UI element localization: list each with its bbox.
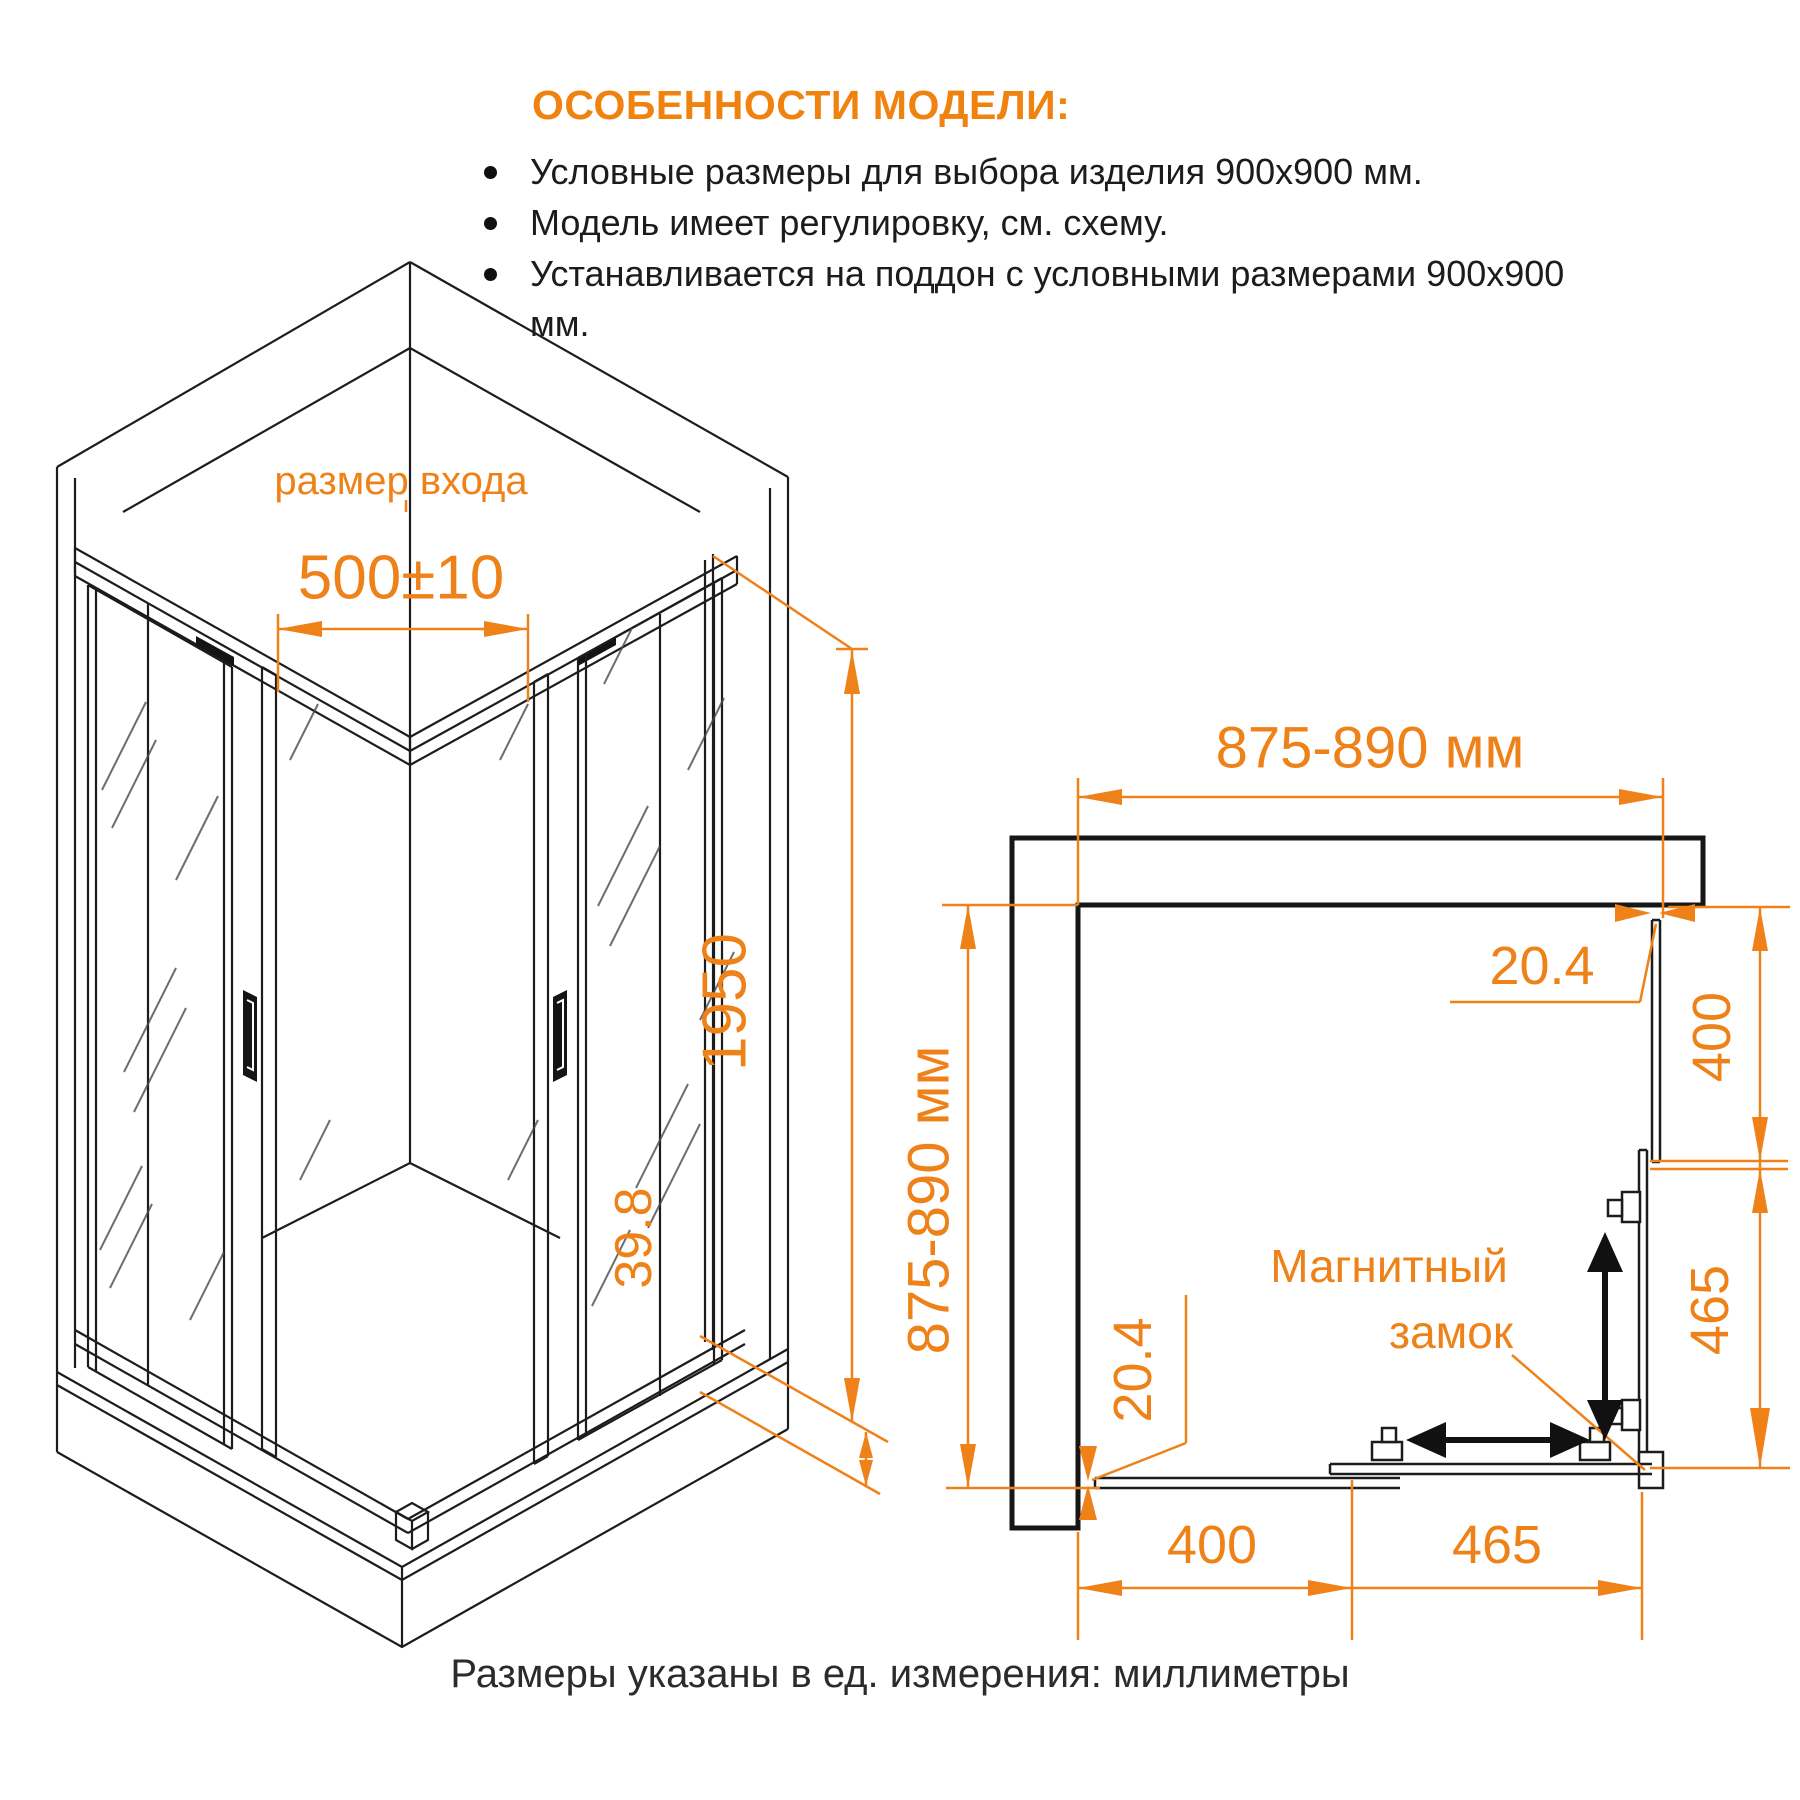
entrance-size-label: размер входа bbox=[274, 459, 528, 503]
technical-drawing: размер входа 500±10 1950 39.8 bbox=[0, 0, 1800, 1800]
plan-adjust-top: 20.4 bbox=[1489, 936, 1594, 996]
tray-height-value: 39.8 bbox=[605, 1187, 663, 1288]
iso-tray bbox=[57, 1330, 788, 1647]
height-value: 1950 bbox=[691, 933, 760, 1071]
iso-dimensions: размер входа 500±10 1950 39.8 bbox=[274, 459, 888, 1494]
plan-width-top: 875-890 мм bbox=[1216, 716, 1525, 781]
plan-view: 875-890 мм 875-890 мм 20.4 bbox=[897, 716, 1791, 1641]
iso-door-right bbox=[534, 614, 660, 1464]
plan-adjust-bottom: 20.4 bbox=[1103, 1317, 1163, 1422]
plan-right-door: 465 bbox=[1680, 1265, 1740, 1355]
page: ОСОБЕННОСТИ МОДЕЛИ: Условные размеры для… bbox=[0, 0, 1800, 1800]
magnetic-lock-label-line1: Магнитный bbox=[1270, 1240, 1508, 1292]
entrance-size-value: 500±10 bbox=[298, 544, 504, 613]
plan-right-fixed: 400 bbox=[1682, 992, 1742, 1082]
plan-bottom-door: 465 bbox=[1452, 1515, 1542, 1575]
plan-bottom-fixed: 400 bbox=[1167, 1515, 1257, 1575]
iso-view: размер входа 500±10 1950 39.8 bbox=[57, 262, 888, 1647]
magnetic-lock-label-line2: замок bbox=[1389, 1306, 1514, 1358]
plan-depth-left: 875-890 мм bbox=[897, 1046, 962, 1355]
units-note: Размеры указаны в ед. измерения: миллиме… bbox=[0, 1652, 1800, 1697]
iso-fixed-panel-left bbox=[88, 585, 232, 1449]
iso-walls bbox=[57, 262, 788, 1372]
